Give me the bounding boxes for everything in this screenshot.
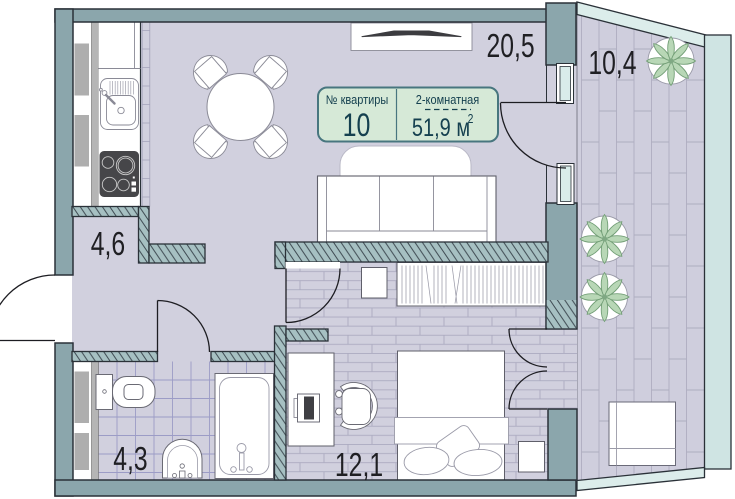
svg-text:4,6: 4,6	[91, 227, 125, 263]
svg-text:20,5: 20,5	[487, 29, 535, 65]
svg-text:10: 10	[343, 108, 371, 144]
svg-text:10,4: 10,4	[588, 46, 636, 82]
svg-text:№ квартиры: № квартиры	[326, 93, 389, 107]
svg-text:4,3: 4,3	[113, 442, 147, 478]
svg-text:2: 2	[468, 112, 474, 126]
svg-text:12,1: 12,1	[335, 448, 383, 484]
svg-text:51,9 м: 51,9 м	[412, 114, 470, 142]
svg-text:2-комнатная: 2-комнатная	[416, 93, 480, 107]
